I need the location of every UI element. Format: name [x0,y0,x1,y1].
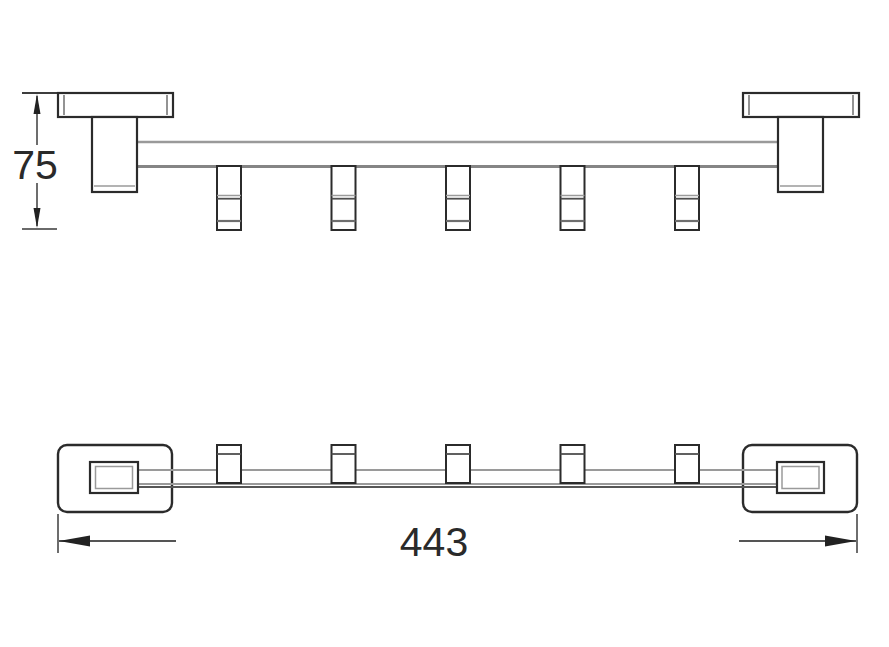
technical-drawing-canvas: 75 [0,0,889,647]
hook-elevation [217,166,241,230]
hook-tab [446,445,470,483]
width-dim-label: 443 [400,519,468,565]
right-wall-plate [743,93,859,117]
arrow-up-icon [34,94,41,114]
hook-tab [675,445,699,483]
arrow-down-icon [34,208,41,228]
arrow-left-icon [59,536,90,547]
hooks-front [217,166,699,230]
hook-plan [561,445,585,483]
towel-hook-rail-drawing: 75 [0,0,889,647]
front-view: 75 [12,93,859,230]
hook-elevation [675,166,699,230]
arrow-right-icon [825,536,856,547]
hook-plan [332,445,356,483]
height-dimension: 75 [12,93,61,229]
hook-plan [675,445,699,483]
bottom-view: 443 [58,445,857,565]
hook-elevation [561,166,585,230]
rail-bar-front [137,142,778,167]
width-dimension: 443 [58,514,857,565]
right-post [778,117,823,192]
hook-elevation [332,166,356,230]
hook-tab [561,445,585,483]
hook-plan [217,445,241,483]
hook-plan [446,445,470,483]
left-post [92,117,137,192]
hooks-plan [217,445,699,483]
left-post-section [90,462,138,493]
hook-tab [217,445,241,483]
height-dim-label: 75 [12,142,58,188]
right-post-section [777,462,824,493]
hook-elevation [446,166,470,230]
left-wall-plate [58,93,173,117]
hook-tab [332,445,356,483]
